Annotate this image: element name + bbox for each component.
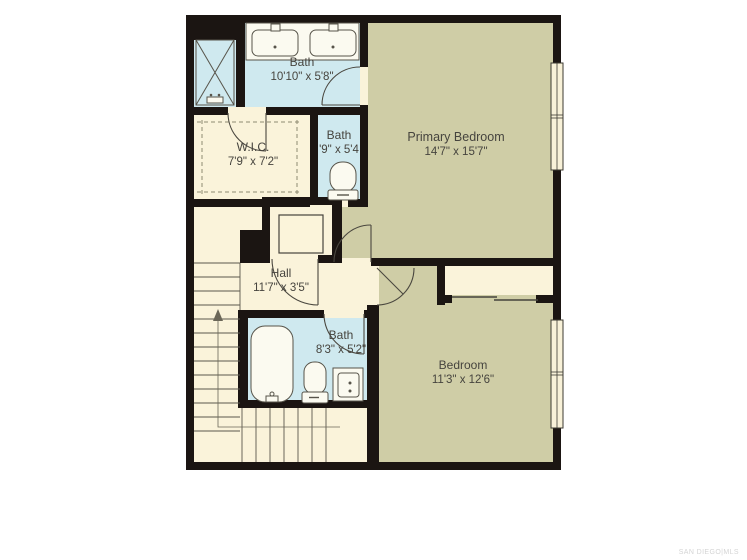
label-primary-bedroom: Primary Bedroom 14'7" x 15'7" [407,130,504,160]
room-name: Hall [253,266,309,281]
wall-shower-right [236,40,245,107]
wall-wic-top-left [194,107,228,115]
wall-hallbath-top-jamb [364,310,379,318]
wall-closet-bottom-right [536,295,553,303]
bedroom-closet-floor [445,266,553,295]
wall-hall-block [240,230,270,263]
wall-bedrooms-divider [371,258,553,266]
room-dims: 8'3" x 5'2" [316,343,366,358]
wall-wic-top-right [266,107,368,115]
wall-outer-right [553,15,561,470]
label-wic: W.I.C. 7'9" x 7'2" [228,140,278,170]
room-dims: 14'7" x 15'7" [407,145,504,160]
wall-bedroom-west [367,305,379,462]
wall-laundry-right [332,197,342,263]
primary-bedroom-entry-floor [342,207,371,258]
label-hall-bath: Bath 8'3" x 5'2" [316,328,366,358]
wall-hallbath-top [238,310,324,318]
wall-bath-primary-lower [360,105,368,207]
label-primary-bath: Bath 10'10" x 5'8" [270,55,333,85]
label-bedroom: Bedroom 11'3" x 12'6" [432,358,494,388]
wall-hallbath-left [238,310,248,408]
wall-laundry-top [262,197,342,205]
wall-bath-primary-upper [360,23,368,67]
wall-wic-smallbath [310,115,318,199]
room-name: Bath [319,128,359,143]
label-small-bath: Bath '9" x 5'4 [319,128,359,158]
mls-watermark: SAN DIEGO|MLS [679,549,739,556]
room-name: Bath [316,328,366,343]
room-dims: 10'10" x 5'8" [270,70,333,85]
room-dims: 11'7" x 3'5" [253,281,309,296]
wall-hall-stub [318,255,342,263]
shower-floor [194,38,236,107]
wall-corner-block [194,15,245,40]
wall-hallbath-bottom [238,400,367,408]
wall-outer-left [186,15,194,470]
room-dims: 7'9" x 7'2" [228,155,278,170]
label-hall: Hall 11'7" x 3'5" [253,266,309,296]
floor-plan: Bath 10'10" x 5'8" W.I.C. 7'9" x 7'2" Ba… [0,0,747,560]
room-name: Bedroom [432,358,494,373]
room-name: Bath [270,55,333,70]
wall-smallbath-bottom [348,199,360,207]
room-name: Primary Bedroom [407,130,504,145]
room-name: W.I.C. [228,140,278,155]
room-dims: 11'3" x 12'6" [432,373,494,388]
room-dims: '9" x 5'4 [319,143,359,158]
wall-closet-bottom-left [437,295,452,303]
wall-outer-bottom [186,462,561,470]
